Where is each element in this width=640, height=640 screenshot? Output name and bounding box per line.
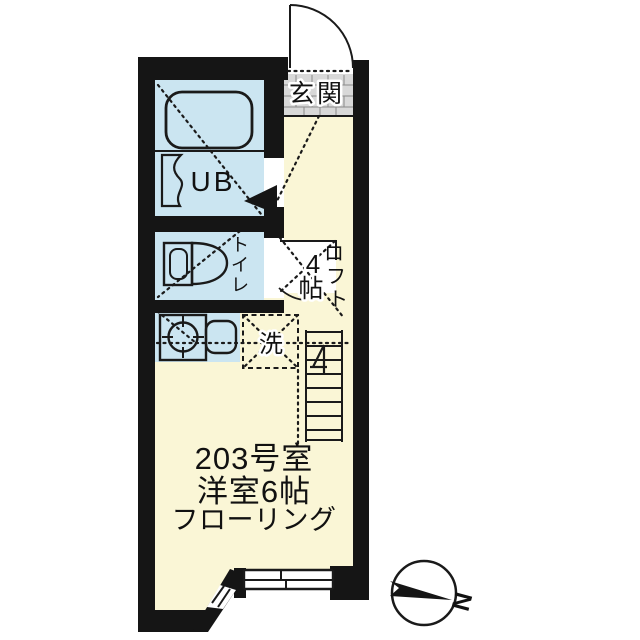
svg-text:ト: ト [231,235,249,255]
svg-text:ロ: ロ [324,243,344,265]
svg-text:フ: フ [326,266,346,288]
room-number-label: 203号室 [195,441,314,476]
wall-left [138,57,155,632]
floorplan-canvas: N 玄関 UB ト イ レ 洗 ロ フ ト 4 帖 203号室 洋室6帖 フロー… [0,0,640,640]
entrance-door-arc [290,5,353,68]
bottom-window [244,570,333,589]
svg-text:ト: ト [328,289,348,311]
wall-bath-toilet [138,216,284,232]
entrance-label: 玄関 [289,80,345,108]
compass-needle [390,581,452,600]
laundry-label: 洗 [259,331,283,358]
wall-bottom-right [330,566,369,600]
svg-text:イ: イ [231,255,249,275]
compass: N [390,561,477,625]
wall-inner-upper [264,80,284,158]
toilet-label: ト イ レ [231,235,249,295]
wall-right [353,60,369,600]
svg-text:レ: レ [231,275,249,295]
wall-toilet-kitchen [138,300,284,313]
wall-top [138,57,288,80]
floorplan-page: N 玄関 UB ト イ レ 洗 ロ フ ト 4 帖 203号室 洋室6帖 フロー… [0,0,640,640]
bath-label: UB [191,166,236,197]
svg-text:帖: 帖 [298,275,323,303]
flooring-label: フローリング [172,505,337,535]
room-type-label: 洋室6帖 [197,474,311,509]
